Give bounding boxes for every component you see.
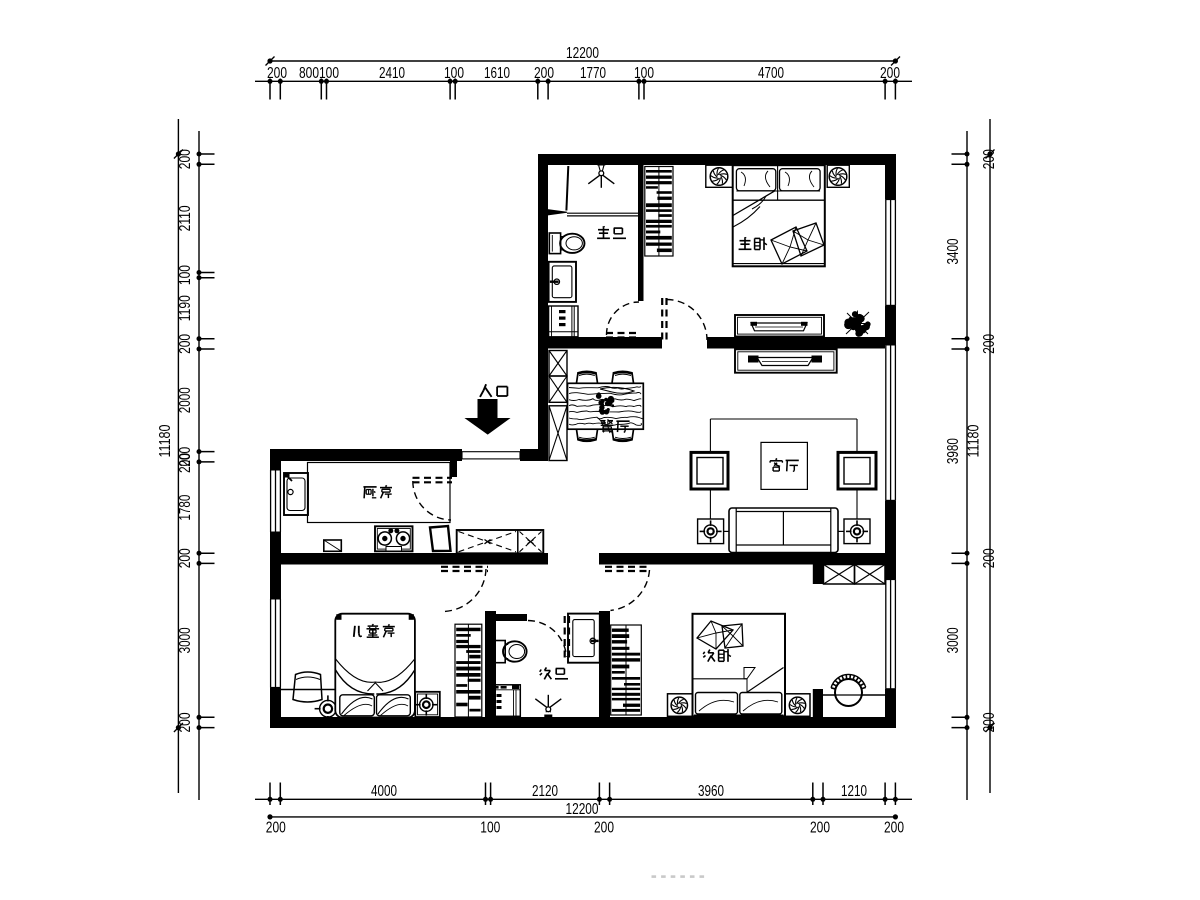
svg-text:3980: 3980 <box>945 438 962 464</box>
svg-text:200: 200 <box>177 548 194 568</box>
svg-text:1780: 1780 <box>177 494 194 520</box>
svg-text:3400: 3400 <box>945 238 962 264</box>
svg-text:12200: 12200 <box>566 45 599 62</box>
svg-text:100: 100 <box>319 65 339 82</box>
svg-text:200: 200 <box>177 149 194 169</box>
svg-text:200: 200 <box>810 820 830 837</box>
svg-text:200: 200 <box>880 65 900 82</box>
svg-text:100: 100 <box>444 65 464 82</box>
svg-text:200: 200 <box>177 453 194 473</box>
svg-text:2410: 2410 <box>379 65 405 82</box>
svg-text:200: 200 <box>266 820 286 837</box>
svg-text:100: 100 <box>480 820 500 837</box>
svg-text:1190: 1190 <box>177 295 194 321</box>
svg-text:200: 200 <box>177 334 194 354</box>
svg-text:1210: 1210 <box>841 783 867 800</box>
svg-text:200: 200 <box>177 712 194 732</box>
svg-text:200: 200 <box>594 820 614 837</box>
svg-text:1610: 1610 <box>484 65 510 82</box>
svg-text:200: 200 <box>884 820 904 837</box>
svg-text:200: 200 <box>534 65 554 82</box>
svg-text:3960: 3960 <box>698 783 724 800</box>
svg-text:2000: 2000 <box>177 387 194 413</box>
svg-text:100: 100 <box>177 265 194 285</box>
svg-text:4000: 4000 <box>371 783 397 800</box>
svg-text:11180: 11180 <box>157 424 174 457</box>
svg-text:3000: 3000 <box>945 627 962 653</box>
svg-text:800: 800 <box>299 65 319 82</box>
svg-text:200: 200 <box>267 65 287 82</box>
svg-text:100: 100 <box>634 65 654 82</box>
svg-text:4700: 4700 <box>758 65 784 82</box>
svg-text:11180: 11180 <box>966 424 983 457</box>
svg-text:1770: 1770 <box>580 65 606 82</box>
svg-text:2120: 2120 <box>532 783 558 800</box>
svg-text:3000: 3000 <box>177 627 194 653</box>
svg-text:12200: 12200 <box>566 801 599 818</box>
svg-text:2110: 2110 <box>177 205 194 231</box>
